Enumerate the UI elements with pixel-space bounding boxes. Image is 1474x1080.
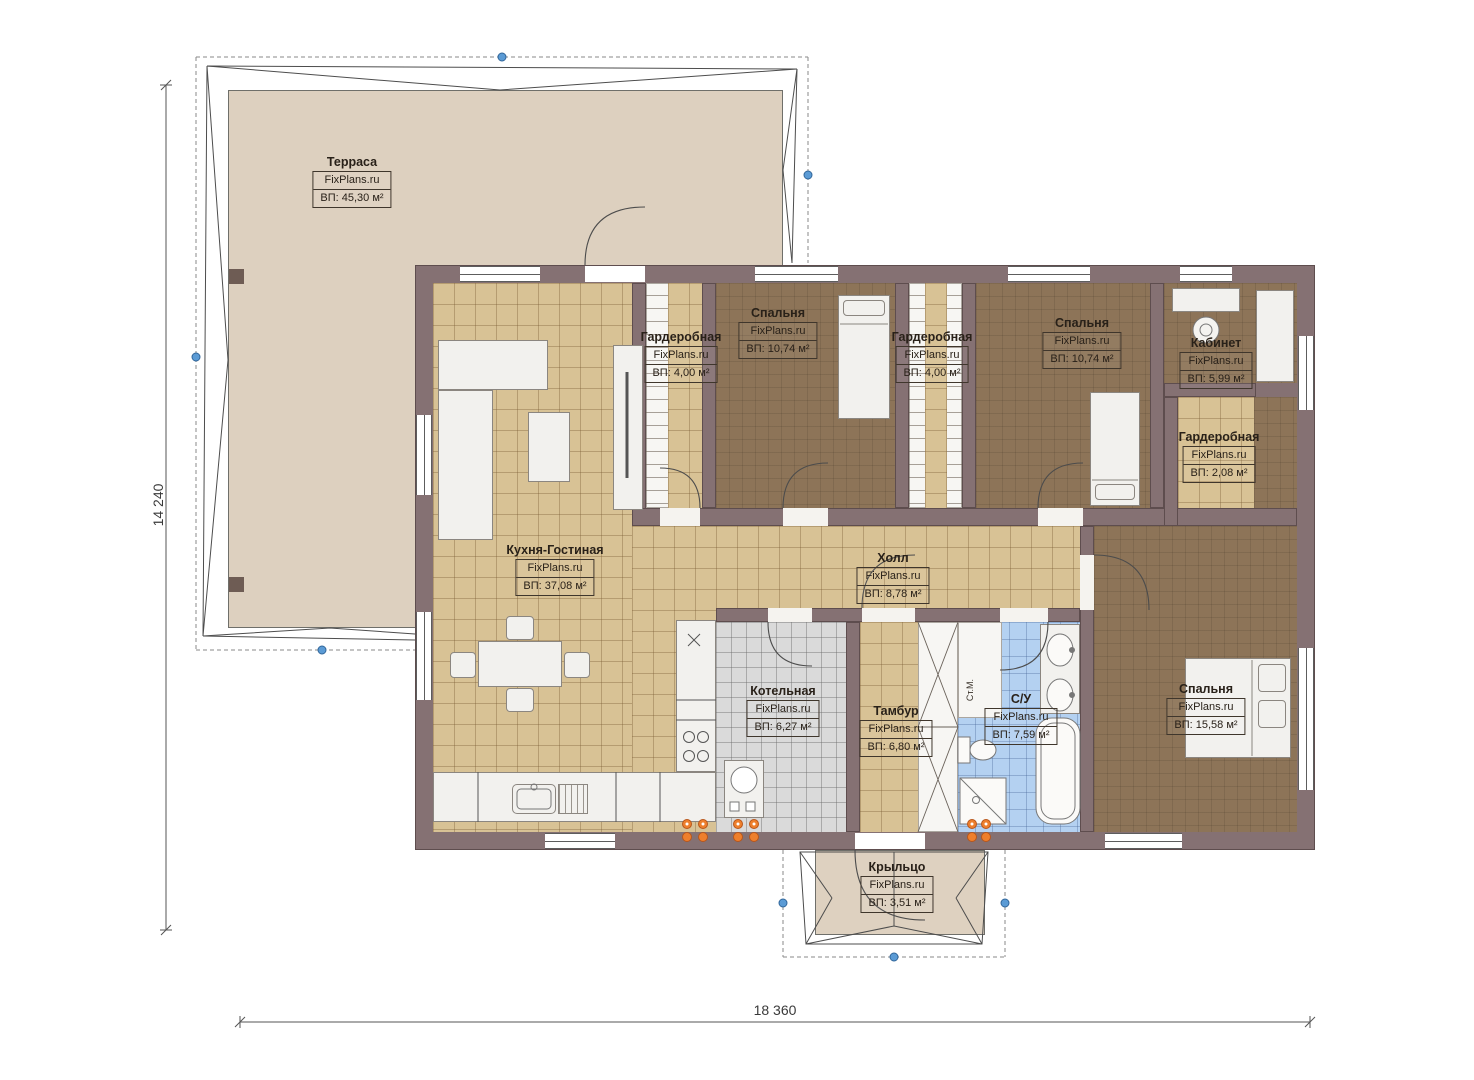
door-opening <box>768 608 812 622</box>
door-opening <box>660 508 700 526</box>
chair <box>450 652 476 678</box>
watermark: FixPlans.ru <box>857 568 928 585</box>
room-label-bedroom-3: Спальня FixPlans.ru ВП: 15,58 м² <box>1166 682 1245 735</box>
room-info-box: FixPlans.ru ВП: 4,00 м² <box>644 346 717 383</box>
office-side-floor <box>1254 397 1297 526</box>
watermark: FixPlans.ru <box>645 347 716 364</box>
room-info-box: FixPlans.ru ВП: 6,80 м² <box>859 720 932 757</box>
room-info-box: FixPlans.ru ВП: 4,00 м² <box>895 346 968 383</box>
window <box>545 833 615 849</box>
terrace-post <box>229 577 244 592</box>
door-opening <box>783 508 828 526</box>
watermark: FixPlans.ru <box>313 172 390 189</box>
room-area: ВП: 15,58 м² <box>1167 716 1244 734</box>
room-area: ВП: 6,80 м² <box>860 738 931 756</box>
room-area: ВП: 37,08 м² <box>516 577 593 595</box>
room-label-wardrobe-3: Гардеробная FixPlans.ru ВП: 2,08 м² <box>1179 430 1260 483</box>
terrace-door-opening <box>585 266 645 282</box>
sofa <box>438 340 548 390</box>
interior-wall <box>702 283 716 508</box>
interior-wall <box>1150 283 1164 508</box>
window <box>1298 336 1314 410</box>
pillow <box>1095 484 1135 500</box>
watermark: FixPlans.ru <box>516 560 593 577</box>
room-info-box: FixPlans.ru ВП: 8,78 м² <box>856 567 929 604</box>
pillow <box>1258 700 1286 728</box>
watermark: FixPlans.ru <box>747 701 818 718</box>
room-area: ВП: 10,74 м² <box>1043 350 1120 368</box>
watermark: FixPlans.ru <box>861 877 932 894</box>
door-opening <box>1000 608 1048 622</box>
window <box>1008 266 1090 282</box>
room-label-bedroom-1: Спальня FixPlans.ru ВП: 10,74 м² <box>738 306 817 359</box>
chair <box>564 652 590 678</box>
room-label-vestibule: Тамбур FixPlans.ru ВП: 6,80 м² <box>859 704 932 757</box>
room-area: ВП: 3,51 м² <box>861 894 932 912</box>
kitchen-counter <box>676 620 716 772</box>
tv-stand <box>613 345 643 510</box>
room-info-box: FixPlans.ru ВП: 3,51 м² <box>860 876 933 913</box>
room-name: Гардеробная <box>1179 430 1260 444</box>
room-name: Гардеробная <box>892 330 973 344</box>
room-label-boiler: Котельная FixPlans.ru ВП: 6,27 м² <box>746 684 819 737</box>
room-name: Крыльцо <box>860 860 933 874</box>
room-area: ВП: 10,74 м² <box>739 340 816 358</box>
window <box>1180 266 1232 282</box>
watermark: FixPlans.ru <box>860 721 931 738</box>
kitchen-sink <box>512 784 556 814</box>
interior-wall <box>962 283 976 508</box>
window <box>416 415 432 495</box>
room-info-box: FixPlans.ru ВП: 6,27 м² <box>746 700 819 737</box>
room-area: ВП: 2,08 м² <box>1183 464 1254 482</box>
room-name: Спальня <box>1166 682 1245 696</box>
room-name: Спальня <box>1042 316 1121 330</box>
watermark: FixPlans.ru <box>1043 333 1120 350</box>
floor-plan: Терраса FixPlans.ru ВП: 45,30 м² Гардеро… <box>0 0 1474 1080</box>
room-info-box: FixPlans.ru ВП: 7,59 м² <box>984 708 1057 745</box>
room-area: ВП: 45,30 м² <box>313 189 390 207</box>
sofa <box>438 390 493 540</box>
window <box>1105 833 1182 849</box>
chair <box>506 616 534 640</box>
room-label-kitchen: Кухня-Гостиная FixPlans.ru ВП: 37,08 м² <box>506 543 603 596</box>
room-area: ВП: 7,59 м² <box>985 726 1056 744</box>
room-label-porch: Крыльцо FixPlans.ru ВП: 3,51 м² <box>860 860 933 913</box>
desk <box>1172 288 1240 312</box>
watermark: FixPlans.ru <box>739 323 816 340</box>
room-label-wardrobe-2: Гардеробная FixPlans.ru ВП: 4,00 м² <box>892 330 973 383</box>
door-opening <box>862 608 915 622</box>
door-opening <box>1038 508 1083 526</box>
room-area: ВП: 4,00 м² <box>896 364 967 382</box>
terrace-post <box>229 269 244 284</box>
room-area: ВП: 8,78 м² <box>857 585 928 603</box>
window <box>416 612 432 700</box>
room-name: Холл <box>856 551 929 565</box>
interior-wall <box>1164 397 1178 526</box>
window <box>460 266 540 282</box>
office-shelf <box>1256 290 1294 382</box>
room-name: С/У <box>984 692 1057 706</box>
room-info-box: FixPlans.ru ВП: 37,08 м² <box>515 559 594 596</box>
washing-machine-label: Ст.М. <box>965 679 975 701</box>
wardrobe2-floor <box>925 283 947 508</box>
room-area: ВП: 5,99 м² <box>1180 370 1251 388</box>
dimension-horizontal: 18 360 <box>754 1002 797 1018</box>
drying-rack <box>558 784 588 814</box>
dimension-vertical: 14 240 <box>150 484 166 527</box>
room-name: Гардеробная <box>641 330 722 344</box>
pillow <box>1258 664 1286 692</box>
wardrobe1-floor <box>668 283 702 508</box>
interior-wall <box>895 283 909 508</box>
room-label-bedroom-2: Спальня FixPlans.ru ВП: 10,74 м² <box>1042 316 1121 369</box>
interior-wall <box>632 508 1297 526</box>
room-name: Кухня-Гостиная <box>506 543 603 557</box>
room-name: Терраса <box>312 155 391 169</box>
coffee-table <box>528 412 570 482</box>
room-label-bathroom: С/У FixPlans.ru ВП: 7,59 м² <box>984 692 1057 745</box>
room-label-office: Кабинет FixPlans.ru ВП: 5,99 м² <box>1179 336 1252 389</box>
room-info-box: FixPlans.ru ВП: 10,74 м² <box>738 322 817 359</box>
window <box>755 266 838 282</box>
room-name: Котельная <box>746 684 819 698</box>
watermark: FixPlans.ru <box>1167 699 1244 716</box>
watermark: FixPlans.ru <box>1180 353 1251 370</box>
window <box>1298 648 1314 790</box>
room-info-box: FixPlans.ru ВП: 2,08 м² <box>1182 446 1255 483</box>
room-info-box: FixPlans.ru ВП: 5,99 м² <box>1179 352 1252 389</box>
room-label-hall: Холл FixPlans.ru ВП: 8,78 м² <box>856 551 929 604</box>
door-opening <box>1080 555 1094 610</box>
room-info-box: FixPlans.ru ВП: 10,74 м² <box>1042 332 1121 369</box>
room-info-box: FixPlans.ru ВП: 15,58 м² <box>1166 698 1245 735</box>
watermark: FixPlans.ru <box>1183 447 1254 464</box>
watermark: FixPlans.ru <box>896 347 967 364</box>
room-name: Кабинет <box>1179 336 1252 350</box>
entry-door-opening <box>855 833 925 849</box>
room-area: ВП: 6,27 м² <box>747 718 818 736</box>
room-name: Спальня <box>738 306 817 320</box>
boiler-unit <box>724 760 764 818</box>
dining-table <box>478 641 562 687</box>
interior-wall <box>846 622 860 832</box>
room-area: ВП: 4,00 м² <box>645 364 716 382</box>
room-info-box: FixPlans.ru ВП: 45,30 м² <box>312 171 391 208</box>
room-name: Тамбур <box>859 704 932 718</box>
pillow <box>843 300 885 316</box>
room-label-terrace: Терраса FixPlans.ru ВП: 45,30 м² <box>312 155 391 208</box>
watermark: FixPlans.ru <box>985 709 1056 726</box>
chair <box>506 688 534 712</box>
room-label-wardrobe-1: Гардеробная FixPlans.ru ВП: 4,00 м² <box>641 330 722 383</box>
